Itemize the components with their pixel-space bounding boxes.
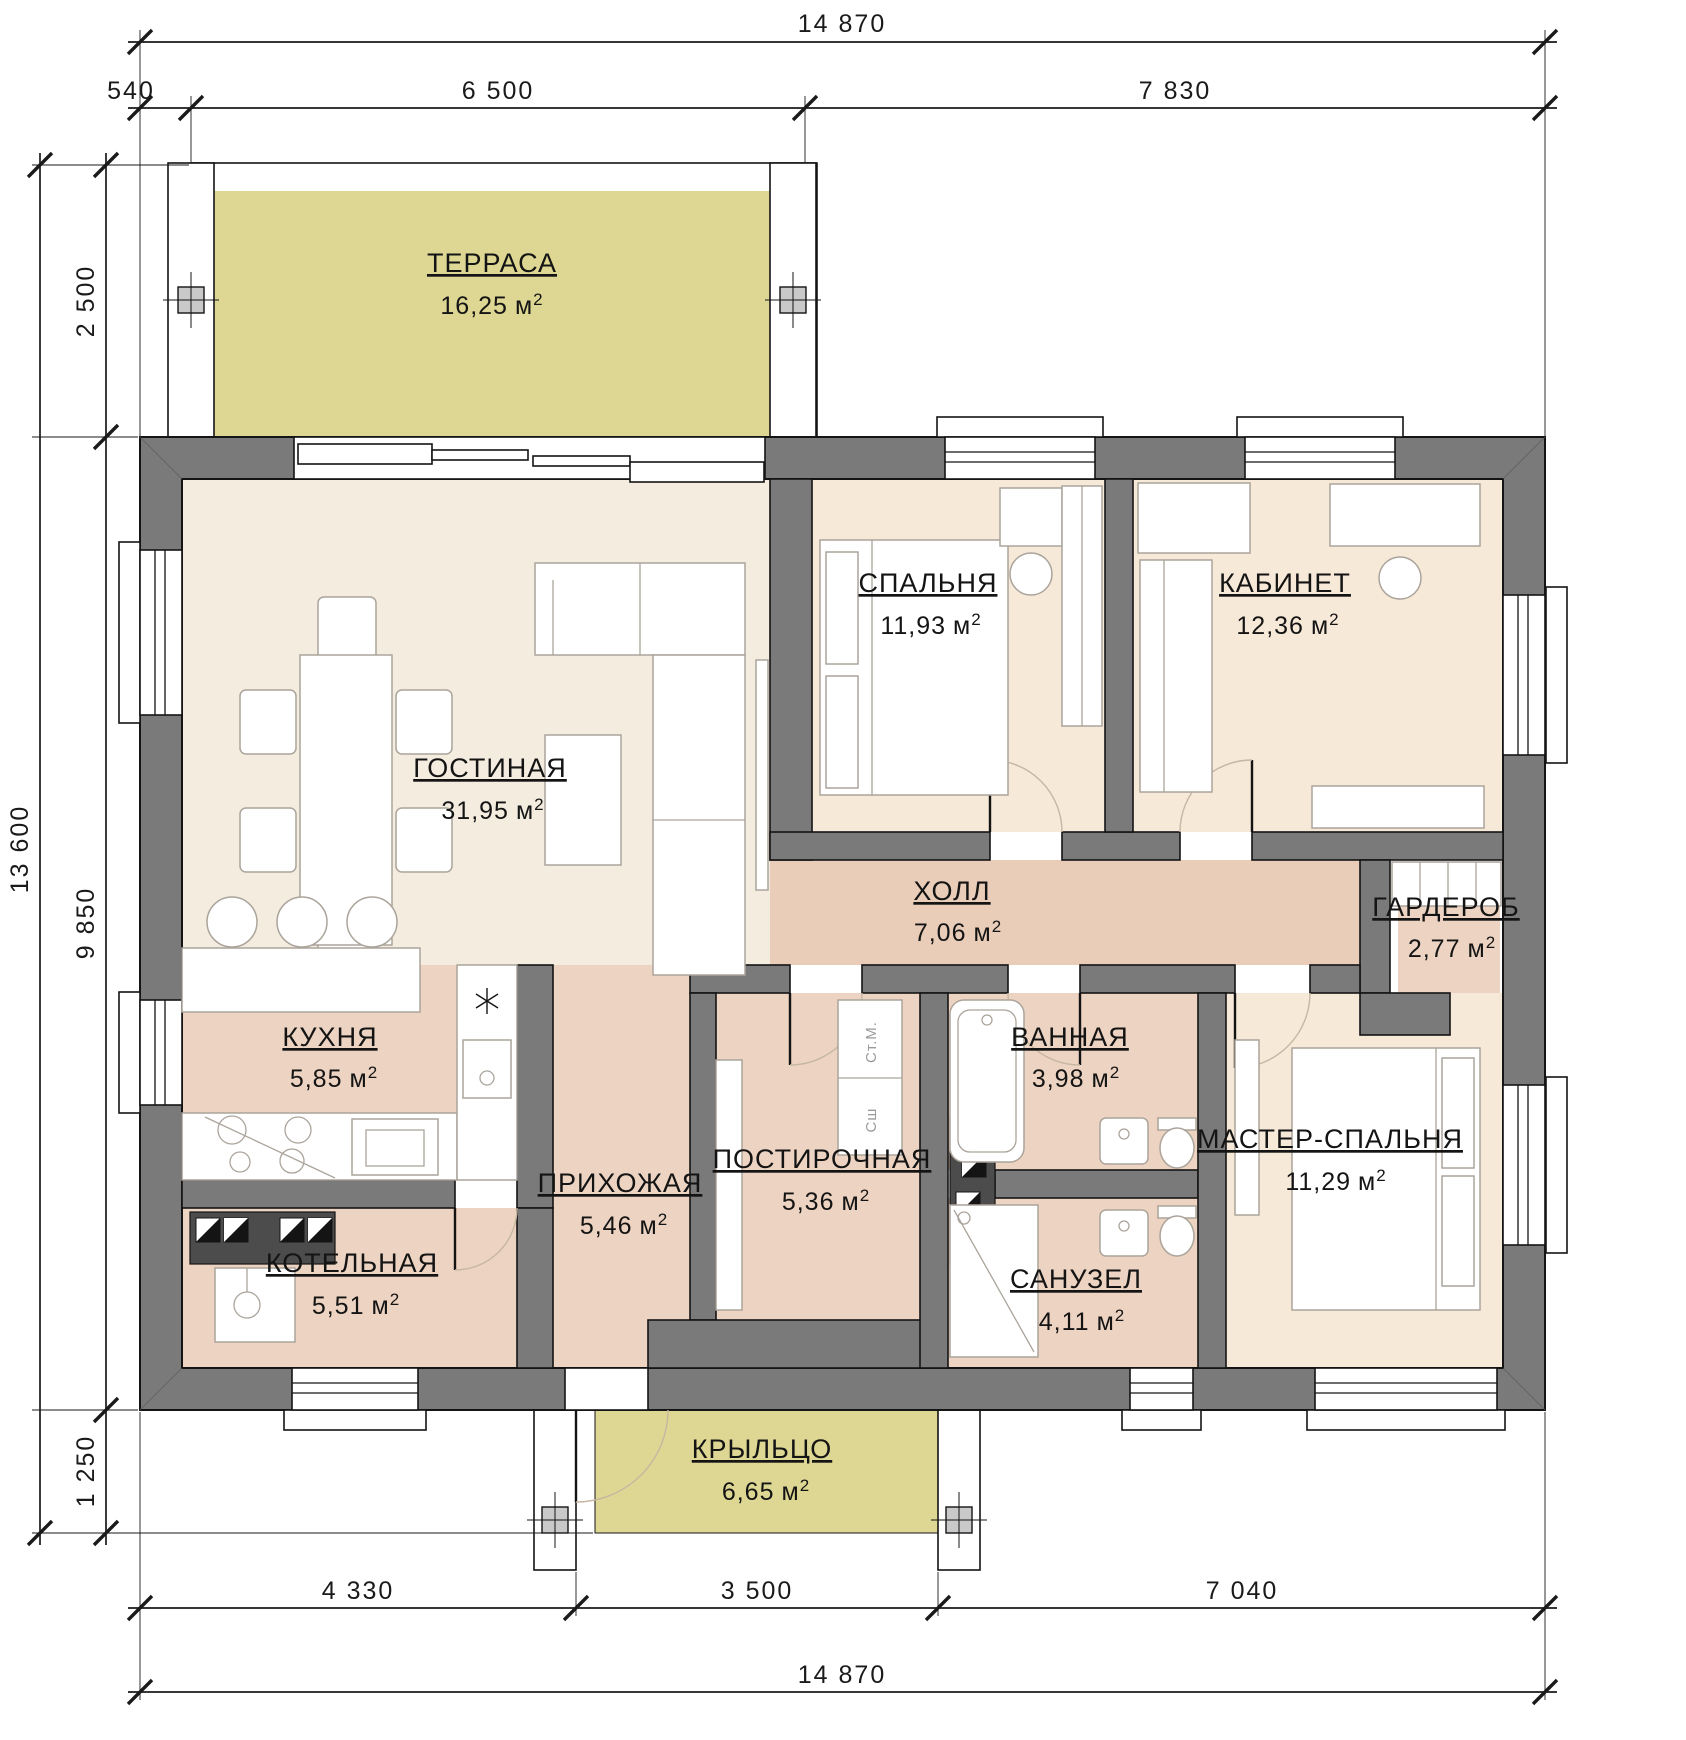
- svg-text:4 330: 4 330: [322, 1577, 395, 1605]
- wall-boiler-entry: [517, 1208, 553, 1368]
- svg-text:7 040: 7 040: [1206, 1577, 1279, 1605]
- porch-deck: [595, 1410, 940, 1533]
- dim-left-segments: 2 500 9 850 1 250: [72, 153, 118, 1545]
- living-window: [119, 542, 182, 723]
- svg-text:14 870: 14 870: [798, 10, 886, 38]
- svg-text:ВАННАЯ: ВАННАЯ: [1011, 1022, 1129, 1052]
- svg-text:16,25м2: 16,25м2: [440, 290, 543, 320]
- wall-laundry-bath: [920, 993, 948, 1368]
- svg-text:3 500: 3 500: [721, 1577, 794, 1605]
- dryer-label: Сш: [863, 1108, 880, 1133]
- svg-text:7,06м2: 7,06м2: [914, 917, 1002, 947]
- wall-hall-south-c: [1080, 965, 1235, 993]
- svg-text:14 870: 14 870: [798, 1661, 886, 1689]
- svg-text:ГАРДЕРОБ: ГАРДЕРОБ: [1372, 892, 1519, 922]
- tv-panel: [756, 660, 768, 890]
- wall-bedroom-hall-b: [1062, 832, 1180, 860]
- wall-laundry-south: [648, 1320, 928, 1368]
- terrace-sliding-door: [294, 437, 765, 482]
- svg-text:7 830: 7 830: [1139, 77, 1212, 105]
- wall-living-bedroom: [770, 479, 812, 860]
- svg-text:ХОЛЛ: ХОЛЛ: [913, 876, 990, 906]
- svg-text:31,95м2: 31,95м2: [441, 795, 544, 825]
- dim-bottom-total: 14 870: [128, 1661, 1557, 1704]
- svg-text:540: 540: [107, 77, 155, 105]
- svg-text:6,65м2: 6,65м2: [722, 1476, 810, 1506]
- svg-text:11,93м2: 11,93м2: [880, 610, 981, 640]
- wall-hall-south-d: [1310, 965, 1360, 993]
- wall-wardrobe-left: [1360, 860, 1390, 993]
- svg-text:СПАЛЬНЯ: СПАЛЬНЯ: [859, 568, 998, 598]
- master-window-bottom: [1307, 1368, 1505, 1430]
- svg-text:ПОСТИРОЧНАЯ: ПОСТИРОЧНАЯ: [713, 1144, 932, 1174]
- wall-bath-master: [1198, 993, 1226, 1368]
- svg-text:2 500: 2 500: [72, 265, 100, 338]
- svg-text:6 500: 6 500: [462, 77, 535, 105]
- boiler-window: [284, 1368, 426, 1430]
- svg-text:КРЫЛЬЦО: КРЫЛЬЦО: [692, 1434, 832, 1464]
- svg-text:1 250: 1 250: [72, 1435, 100, 1508]
- svg-text:ТЕРРАСА: ТЕРРАСА: [427, 248, 557, 278]
- floor-plan-canvas: Ст.М. Сш: [0, 0, 1686, 1740]
- bar-counter: [182, 897, 420, 1012]
- svg-text:12,36м2: 12,36м2: [1236, 610, 1339, 640]
- svg-text:3,98м2: 3,98м2: [1032, 1063, 1120, 1093]
- svg-text:САНУЗЕЛ: САНУЗЕЛ: [1010, 1264, 1142, 1294]
- svg-text:5,36м2: 5,36м2: [782, 1186, 870, 1216]
- svg-text:13 600: 13 600: [6, 805, 34, 893]
- office-window-top: [1237, 417, 1403, 479]
- svg-text:МАСТЕР-СПАЛЬНЯ: МАСТЕР-СПАЛЬНЯ: [1197, 1124, 1463, 1154]
- hall-floor: [770, 860, 1360, 965]
- svg-text:КОТЕЛЬНАЯ: КОТЕЛЬНАЯ: [266, 1248, 438, 1278]
- porch-entrance-door: [565, 1368, 648, 1410]
- bedroom-window: [937, 417, 1103, 479]
- dim-left-total: 13 600: [6, 153, 52, 1545]
- svg-text:ПРИХОЖАЯ: ПРИХОЖАЯ: [538, 1168, 703, 1198]
- wall-master-vestibule: [1360, 993, 1450, 1035]
- wall-office-hall: [1252, 832, 1503, 860]
- wall-hall-south-b: [862, 965, 1008, 993]
- wall-kitchen-boiler: [182, 1180, 455, 1208]
- entry-floor: [553, 965, 690, 1368]
- svg-text:КАБИНЕТ: КАБИНЕТ: [1219, 568, 1351, 598]
- svg-text:2,77м2: 2,77м2: [1408, 933, 1496, 963]
- washer-label: Ст.М.: [863, 1021, 880, 1063]
- svg-text:5,85м2: 5,85м2: [290, 1063, 378, 1093]
- svg-text:ГОСТИНАЯ: ГОСТИНАЯ: [413, 753, 567, 783]
- dim-bottom-segments: 4 330 3 500 7 040: [128, 1577, 1557, 1620]
- svg-text:5,51м2: 5,51м2: [312, 1290, 400, 1320]
- dim-top-total: 14 870: [128, 10, 1557, 54]
- wall-bathroom-wc: [995, 1170, 1198, 1198]
- dim-top-segments: 540 6 500 7 830: [107, 77, 1557, 120]
- svg-text:5,46м2: 5,46м2: [580, 1210, 668, 1240]
- master-window-right: [1503, 1077, 1567, 1253]
- svg-text:9 850: 9 850: [72, 887, 100, 960]
- kitchen-window: [119, 992, 182, 1113]
- svg-text:КУХНЯ: КУХНЯ: [282, 1022, 377, 1052]
- wall-bedroom-hall-a: [770, 832, 990, 860]
- svg-text:4,11м2: 4,11м2: [1039, 1306, 1125, 1336]
- svg-text:11,29м2: 11,29м2: [1285, 1166, 1386, 1196]
- wall-bedroom-office: [1105, 479, 1133, 832]
- office-window-right: [1503, 587, 1567, 763]
- wc-window: [1122, 1368, 1201, 1430]
